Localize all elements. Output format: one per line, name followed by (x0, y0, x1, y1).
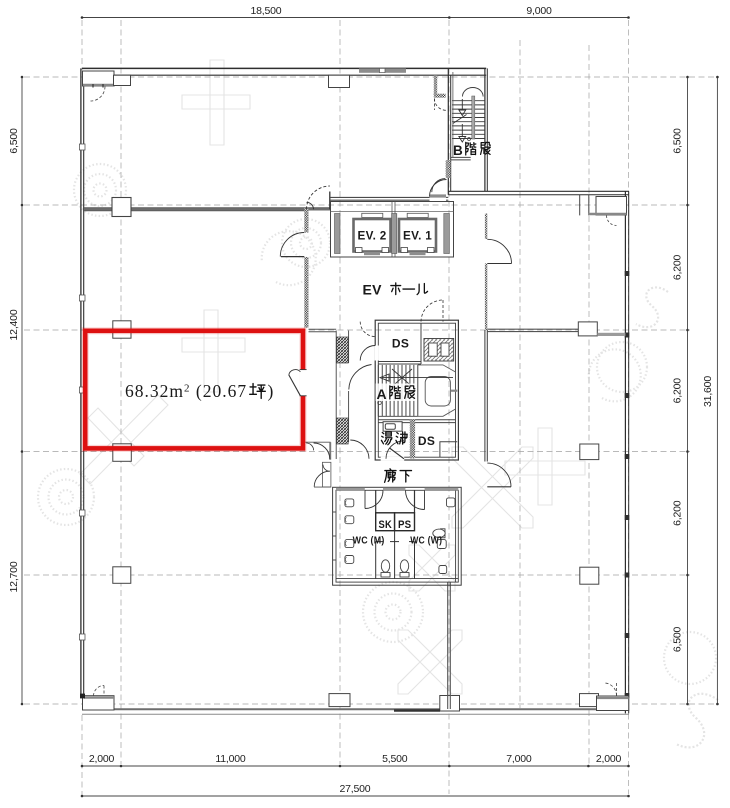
svg-text:WC (W): WC (W) (410, 535, 442, 546)
svg-text:WC (M): WC (M) (353, 535, 385, 546)
svg-text:A: A (377, 386, 387, 402)
svg-text:EV. 2: EV. 2 (358, 229, 387, 243)
svg-text:6,200: 6,200 (672, 378, 684, 404)
svg-text:PS: PS (398, 519, 412, 531)
svg-text:6,200: 6,200 (672, 500, 684, 526)
svg-text:12,700: 12,700 (8, 561, 20, 592)
svg-text:2,000: 2,000 (596, 753, 622, 765)
svg-text:6,500: 6,500 (672, 128, 684, 154)
svg-text:11,000: 11,000 (215, 753, 245, 765)
svg-text:B: B (453, 143, 463, 158)
svg-text:EV: EV (363, 282, 383, 298)
svg-text:SK: SK (379, 519, 393, 531)
svg-text:6,200: 6,200 (672, 255, 684, 281)
svg-text:EV. 1: EV. 1 (403, 229, 432, 243)
svg-text:2,000: 2,000 (89, 753, 115, 765)
svg-text:6,500: 6,500 (8, 128, 20, 154)
svg-text:7,000: 7,000 (506, 753, 532, 765)
svg-text:9,000: 9,000 (526, 5, 552, 17)
svg-text:DS: DS (418, 434, 435, 448)
svg-text:): ) (268, 381, 274, 401)
svg-text:6,500: 6,500 (672, 627, 684, 653)
svg-text:5,500: 5,500 (382, 753, 408, 765)
svg-text:DS: DS (392, 337, 409, 351)
svg-text:27,500: 27,500 (340, 783, 371, 795)
svg-text:18,500: 18,500 (251, 5, 282, 17)
svg-text:31,600: 31,600 (702, 376, 714, 407)
svg-text:12,400: 12,400 (8, 309, 20, 340)
